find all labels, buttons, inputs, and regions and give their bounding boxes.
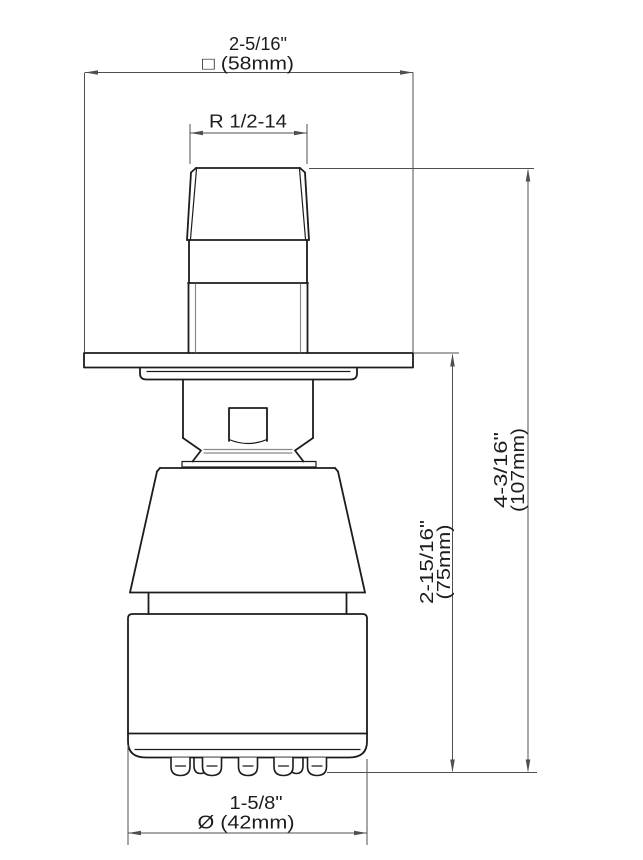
collar-outline (188, 240, 308, 283)
arrow-height-down (526, 760, 531, 773)
nipple-right-chamfer (300, 168, 305, 173)
technical-drawing: 2-5/16" □ (58mm) R 1/2-14 2-15/16" (75mm… (0, 0, 643, 860)
nipple-left-side (187, 173, 191, 241)
thread-label: R 1/2-14 (209, 112, 287, 132)
arrow-diameter-left (128, 831, 141, 836)
joint-knob (229, 408, 267, 441)
arrow-diameter-right (354, 831, 367, 836)
nipple-right-side (305, 173, 309, 241)
dimension-labels: 2-5/16" □ (58mm) R 1/2-14 2-15/16" (75mm… (198, 34, 529, 833)
nozzle-row (171, 758, 327, 776)
detail-lines (196, 284, 301, 453)
joint-base-plate (182, 462, 316, 468)
housing-waist-left (183, 438, 201, 462)
flange-plate (84, 353, 413, 368)
drawing-canvas: 2-5/16" □ (58mm) R 1/2-14 2-15/16" (75mm… (0, 0, 643, 860)
arrow-thread-right (294, 131, 307, 136)
arrow-flange-left (85, 70, 98, 75)
sprayhead-body (128, 614, 367, 734)
housing-waist-right (295, 438, 313, 462)
nipple-left-chamfer (191, 168, 196, 173)
arrow-height-up (526, 169, 531, 182)
arrow-projection-down (450, 760, 455, 773)
flange-width-label-metric: □ (58mm) (202, 54, 294, 74)
joint-ball-arc (229, 440, 267, 444)
arrow-flange-right (400, 70, 413, 75)
fixture-outline (84, 168, 413, 776)
diameter-label-metric: Ø (42mm) (198, 813, 295, 833)
cone-left-side (130, 472, 157, 593)
flange-lip (140, 368, 357, 380)
gasket-groove-lines (204, 450, 292, 454)
arrowheads (85, 70, 530, 835)
arrow-projection-up (450, 354, 455, 367)
flange-width-label-inches: 2-5/16" (229, 34, 287, 54)
arrow-thread-left (190, 131, 203, 136)
sprayhead-cap (128, 734, 367, 758)
cone-right-side (338, 472, 365, 593)
diameter-label-inches: 1-5/8" (230, 793, 283, 813)
overall-height-label-metric: (107mm) (508, 428, 528, 512)
projection-label-metric: (75mm) (434, 525, 454, 600)
dimension-lines (85, 70, 538, 845)
